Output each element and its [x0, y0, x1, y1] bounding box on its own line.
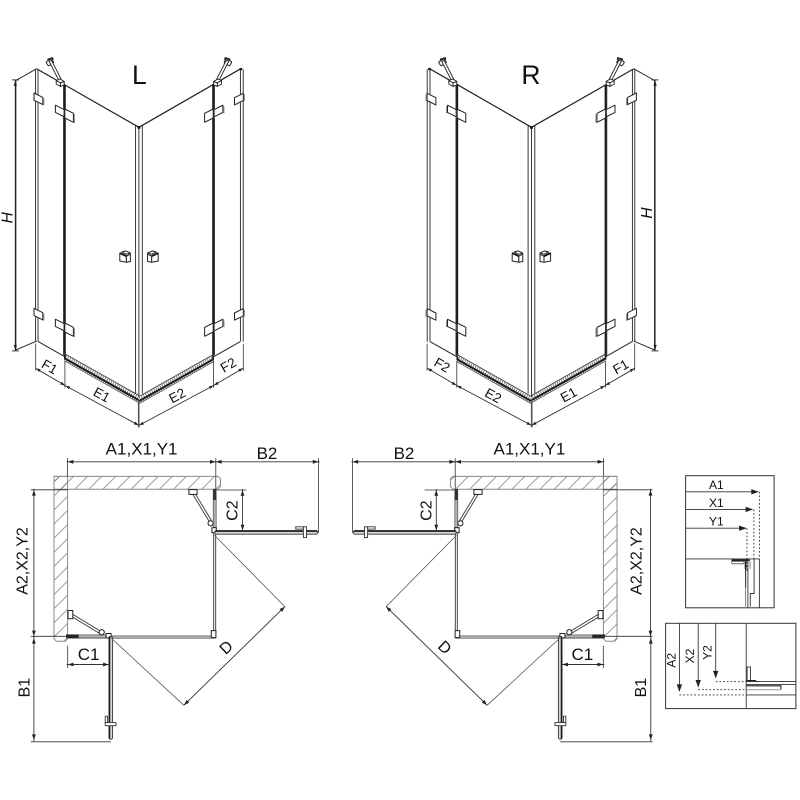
svg-text:A2,X2,Y2: A2,X2,Y2 — [629, 527, 646, 595]
svg-text:C1: C1 — [572, 645, 594, 664]
svg-text:A2,X2,Y2: A2,X2,Y2 — [15, 527, 32, 595]
svg-text:C1: C1 — [78, 645, 100, 664]
svg-text:A1,X1,Y1: A1,X1,Y1 — [493, 440, 565, 459]
svg-text:Y2: Y2 — [701, 645, 715, 660]
svg-text:Y1: Y1 — [709, 515, 724, 529]
svg-text:H: H — [639, 207, 656, 219]
svg-text:R: R — [521, 60, 540, 90]
svg-text:X1: X1 — [709, 496, 724, 510]
svg-text:B2: B2 — [394, 444, 415, 463]
svg-text:A1,X1,Y1: A1,X1,Y1 — [106, 440, 178, 459]
svg-text:C2: C2 — [225, 500, 242, 521]
svg-text:A2: A2 — [664, 653, 678, 668]
svg-text:H: H — [0, 211, 16, 223]
svg-text:X2: X2 — [683, 648, 697, 663]
svg-text:L: L — [132, 60, 147, 90]
svg-text:C2: C2 — [419, 500, 436, 521]
svg-text:B1: B1 — [633, 678, 650, 698]
svg-text:B2: B2 — [257, 444, 278, 463]
svg-text:A1: A1 — [709, 478, 724, 492]
svg-text:B1: B1 — [16, 678, 33, 698]
